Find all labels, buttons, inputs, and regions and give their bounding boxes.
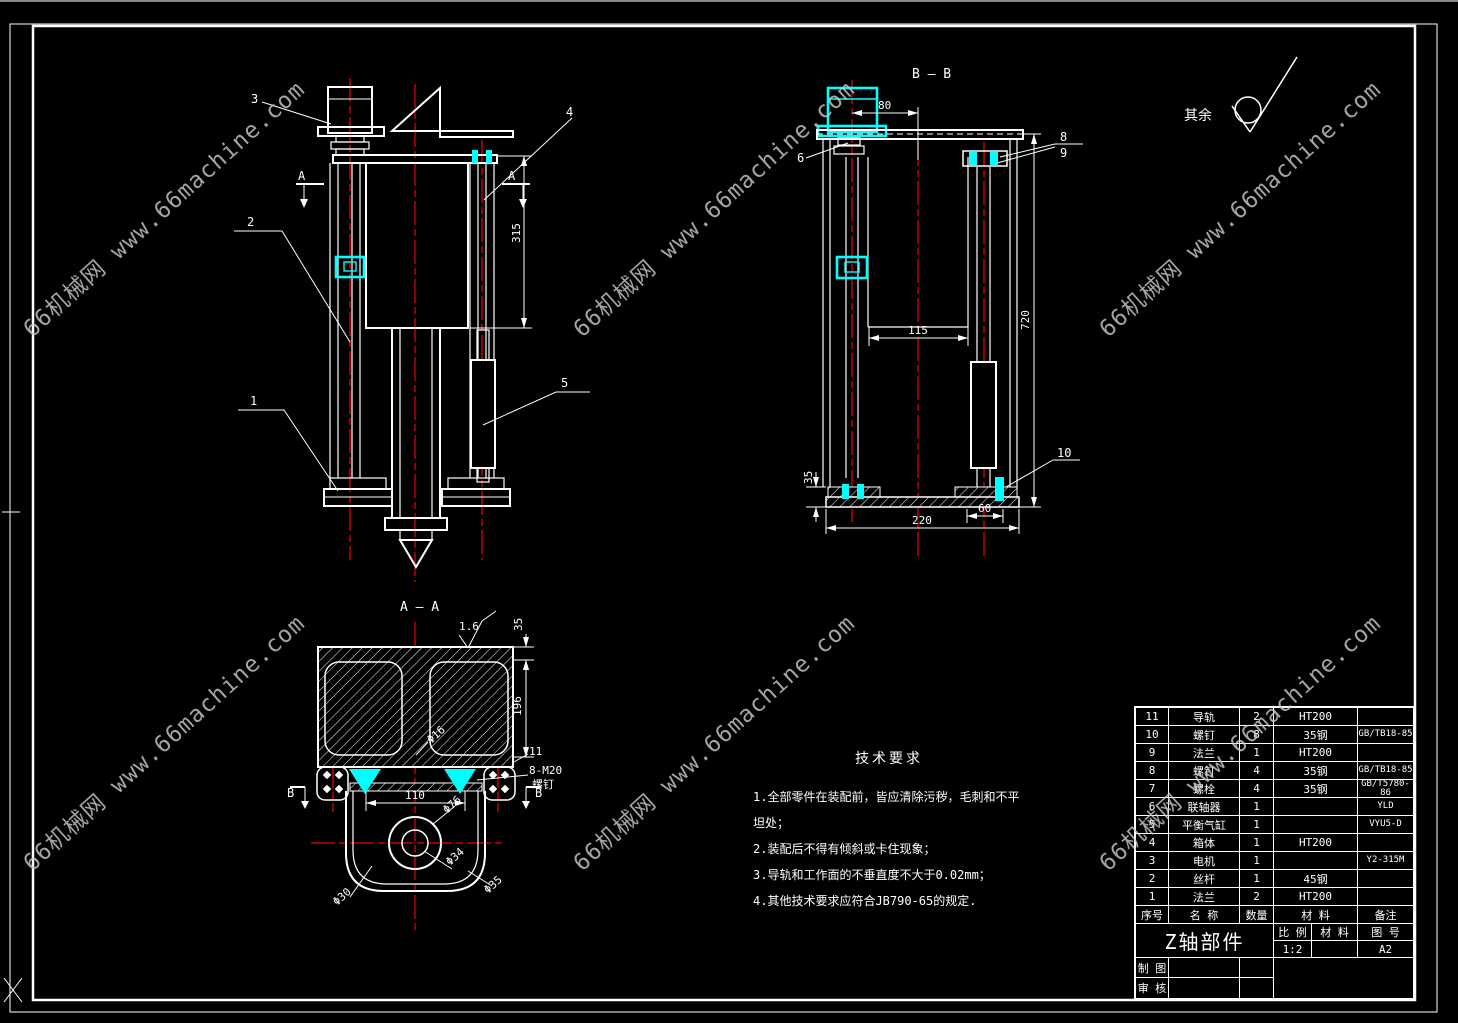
section-letter-a: A <box>298 169 306 183</box>
part-material: 35钢 <box>1274 780 1358 798</box>
balloon-5: 5 <box>561 376 568 390</box>
note-8-m20: 8-M20 <box>529 764 562 777</box>
roughness-symbol-circle <box>1235 97 1261 123</box>
dim-110: 110 <box>405 789 425 802</box>
section-letter-b: B <box>287 786 294 800</box>
part-no: 3 <box>1136 852 1169 870</box>
section-marker-a-right: A <box>502 169 530 208</box>
part-material: 35钢 <box>1274 726 1358 744</box>
part-no: 11 <box>1136 708 1169 726</box>
part-qty: 4 <box>1240 780 1274 798</box>
part-qty: 1 <box>1240 870 1274 888</box>
tech-requirement-line: 3.导轨和工作面的不垂直度不大于0.02mm； <box>753 862 1025 888</box>
part-remark: YLD <box>1358 798 1413 816</box>
balance-cylinder <box>971 362 996 468</box>
title-block: 11 导轨 2 HT200 10 螺钉 8 35钢 GB/TB18-85 9 法… <box>1134 706 1415 1000</box>
balloon-9: 9 <box>1060 146 1067 160</box>
part-no: 8 <box>1136 762 1169 780</box>
part-qty: 1 <box>1240 798 1274 816</box>
section-marker-b-left: B <box>287 786 309 809</box>
part-qty: 4 <box>1240 762 1274 780</box>
checker-date <box>1240 978 1274 998</box>
balance-cylinder <box>471 360 495 468</box>
part-remark <box>1358 708 1413 726</box>
part-qty: 1 <box>1240 834 1274 852</box>
bottom-flange-right <box>448 478 504 489</box>
section-view-aa: A — A 1.6 35 196 Φ16 11 8-M20 <box>287 600 562 934</box>
part-material <box>1274 816 1358 834</box>
dim-60: 60 <box>978 502 991 515</box>
balloon-8: 8 <box>1060 130 1067 144</box>
screw-highlight <box>472 150 478 163</box>
housing-body <box>366 163 468 328</box>
dim-phi35: Φ35 <box>481 873 504 896</box>
technical-requirements: 技术要求 1.全部零件在装配前，皆应清除污秽，毛刺和不平坦处； 2.装配后不得有… <box>753 748 1025 914</box>
scale-value: 1:2 <box>1274 941 1312 958</box>
ram-cross-section <box>318 647 513 767</box>
window-top-edge <box>0 0 1458 2</box>
header-remark: 备注 <box>1358 906 1413 924</box>
tech-requirements-title: 技术要求 <box>753 748 1025 768</box>
part-material: HT200 <box>1274 834 1358 852</box>
header-qty: 数量 <box>1240 906 1274 924</box>
part-name: 电机 <box>1169 852 1240 870</box>
part-material: HT200 <box>1274 888 1358 906</box>
part-material: 45钢 <box>1274 870 1358 888</box>
sheet-value: A2 <box>1358 941 1413 958</box>
tool-cone-tip <box>400 540 432 567</box>
header-material: 材 料 <box>1274 906 1358 924</box>
header-name: 名 称 <box>1169 906 1240 924</box>
drafter-date <box>1240 958 1274 978</box>
tech-requirement-line: 2.装配后不得有倾斜或卡住现象； <box>753 836 1025 862</box>
top-mount-plate <box>440 131 513 137</box>
dim-phi34: Φ34 <box>443 845 467 868</box>
part-material: HT200 <box>1274 744 1358 762</box>
side-bracket-right <box>484 767 515 800</box>
bottom-flange-left <box>330 478 386 489</box>
part-material <box>1274 798 1358 816</box>
finish-note-label: 其余 <box>1184 107 1212 124</box>
dim-35-aa: 35 <box>512 618 525 631</box>
balloon-6: 6 <box>797 151 804 165</box>
header-no: 序号 <box>1136 906 1169 924</box>
section-view-bb: B — B <box>797 67 1083 556</box>
dim-phi30: Φ30 <box>330 885 353 908</box>
dim-315: 315 <box>510 223 523 243</box>
dim-115: 115 <box>908 324 928 337</box>
roughness-value: 1.6 <box>459 620 479 633</box>
part-name: 平衡气缸 <box>1169 816 1240 834</box>
dim-35-bb: 35 <box>802 471 815 484</box>
gusset-plate <box>392 88 440 131</box>
balloon-11: 11 <box>529 745 542 758</box>
front-view: A A 315 3 4 2 1 5 <box>234 78 590 582</box>
part-no: 2 <box>1136 870 1169 888</box>
part-name: 箱体 <box>1169 834 1240 852</box>
part-no: 1 <box>1136 888 1169 906</box>
part-name: 丝杆 <box>1169 870 1240 888</box>
surface-finish-note: 其余 <box>1184 57 1297 132</box>
part-material: 35钢 <box>1274 762 1358 780</box>
assembly-title: Z轴部件 <box>1136 924 1274 958</box>
tech-requirement-line: 4.其他技术要求应符合JB790-65的规定. <box>753 888 1025 914</box>
part-qty: 2 <box>1240 888 1274 906</box>
part-remark: GB/T5780-86 <box>1358 780 1413 798</box>
part-remark <box>1358 888 1413 906</box>
part-no: 9 <box>1136 744 1169 762</box>
dim-phi76: Φ76 <box>440 793 463 816</box>
section-bb-title: B — B <box>912 67 951 82</box>
part-name: 法兰 <box>1169 888 1240 906</box>
part-qty: 1 <box>1240 816 1274 834</box>
checker-label: 审 核 <box>1136 978 1169 998</box>
material-value <box>1312 941 1358 958</box>
drafter-label: 制 图 <box>1136 958 1169 978</box>
part-remark <box>1358 834 1413 852</box>
section-aa-title: A — A <box>400 600 439 615</box>
dim-220: 220 <box>912 514 932 527</box>
roughness-mark: 1.6 <box>459 611 496 648</box>
balloon-2: 2 <box>247 215 254 229</box>
dim-80: 80 <box>878 99 891 112</box>
tech-requirement-line: 1.全部零件在装配前，皆应清除污秽，毛刺和不平坦处； <box>753 784 1025 836</box>
cad-drawing-canvas: A A 315 3 4 2 1 5 <box>0 0 1458 1023</box>
part-name: 导轨 <box>1169 708 1240 726</box>
part-material <box>1274 852 1358 870</box>
balloon-4: 4 <box>566 105 573 119</box>
title-strip: Z轴部件 比 例 材 料 图 号 1:2 A2 <box>1136 924 1413 958</box>
balloon-10: 10 <box>1057 446 1071 460</box>
part-remark: GB/TB18-85 <box>1358 726 1413 744</box>
section-marker-a-left: A <box>296 169 324 208</box>
part-remark: VYU5-D <box>1358 816 1413 834</box>
signature-strip: 制 图 审 核 <box>1136 958 1413 998</box>
scale-label: 比 例 <box>1274 924 1312 941</box>
section-letter-b: B <box>535 786 542 800</box>
part-remark <box>1358 744 1413 762</box>
part-qty: 1 <box>1240 852 1274 870</box>
sheet-label: 图 号 <box>1358 924 1413 941</box>
screw-highlight <box>995 477 1004 501</box>
signature-extra <box>1274 958 1413 998</box>
checker-name <box>1169 978 1240 998</box>
dim-720: 720 <box>1019 310 1032 330</box>
balloon-1: 1 <box>250 394 257 408</box>
drafter-name <box>1169 958 1240 978</box>
part-remark <box>1358 870 1413 888</box>
part-remark: GB/TB18-85 <box>1358 762 1413 780</box>
part-remark: Y2-315M <box>1358 852 1413 870</box>
dim-196: 196 <box>511 696 524 716</box>
part-no: 10 <box>1136 726 1169 744</box>
material-label: 材 料 <box>1312 924 1358 941</box>
